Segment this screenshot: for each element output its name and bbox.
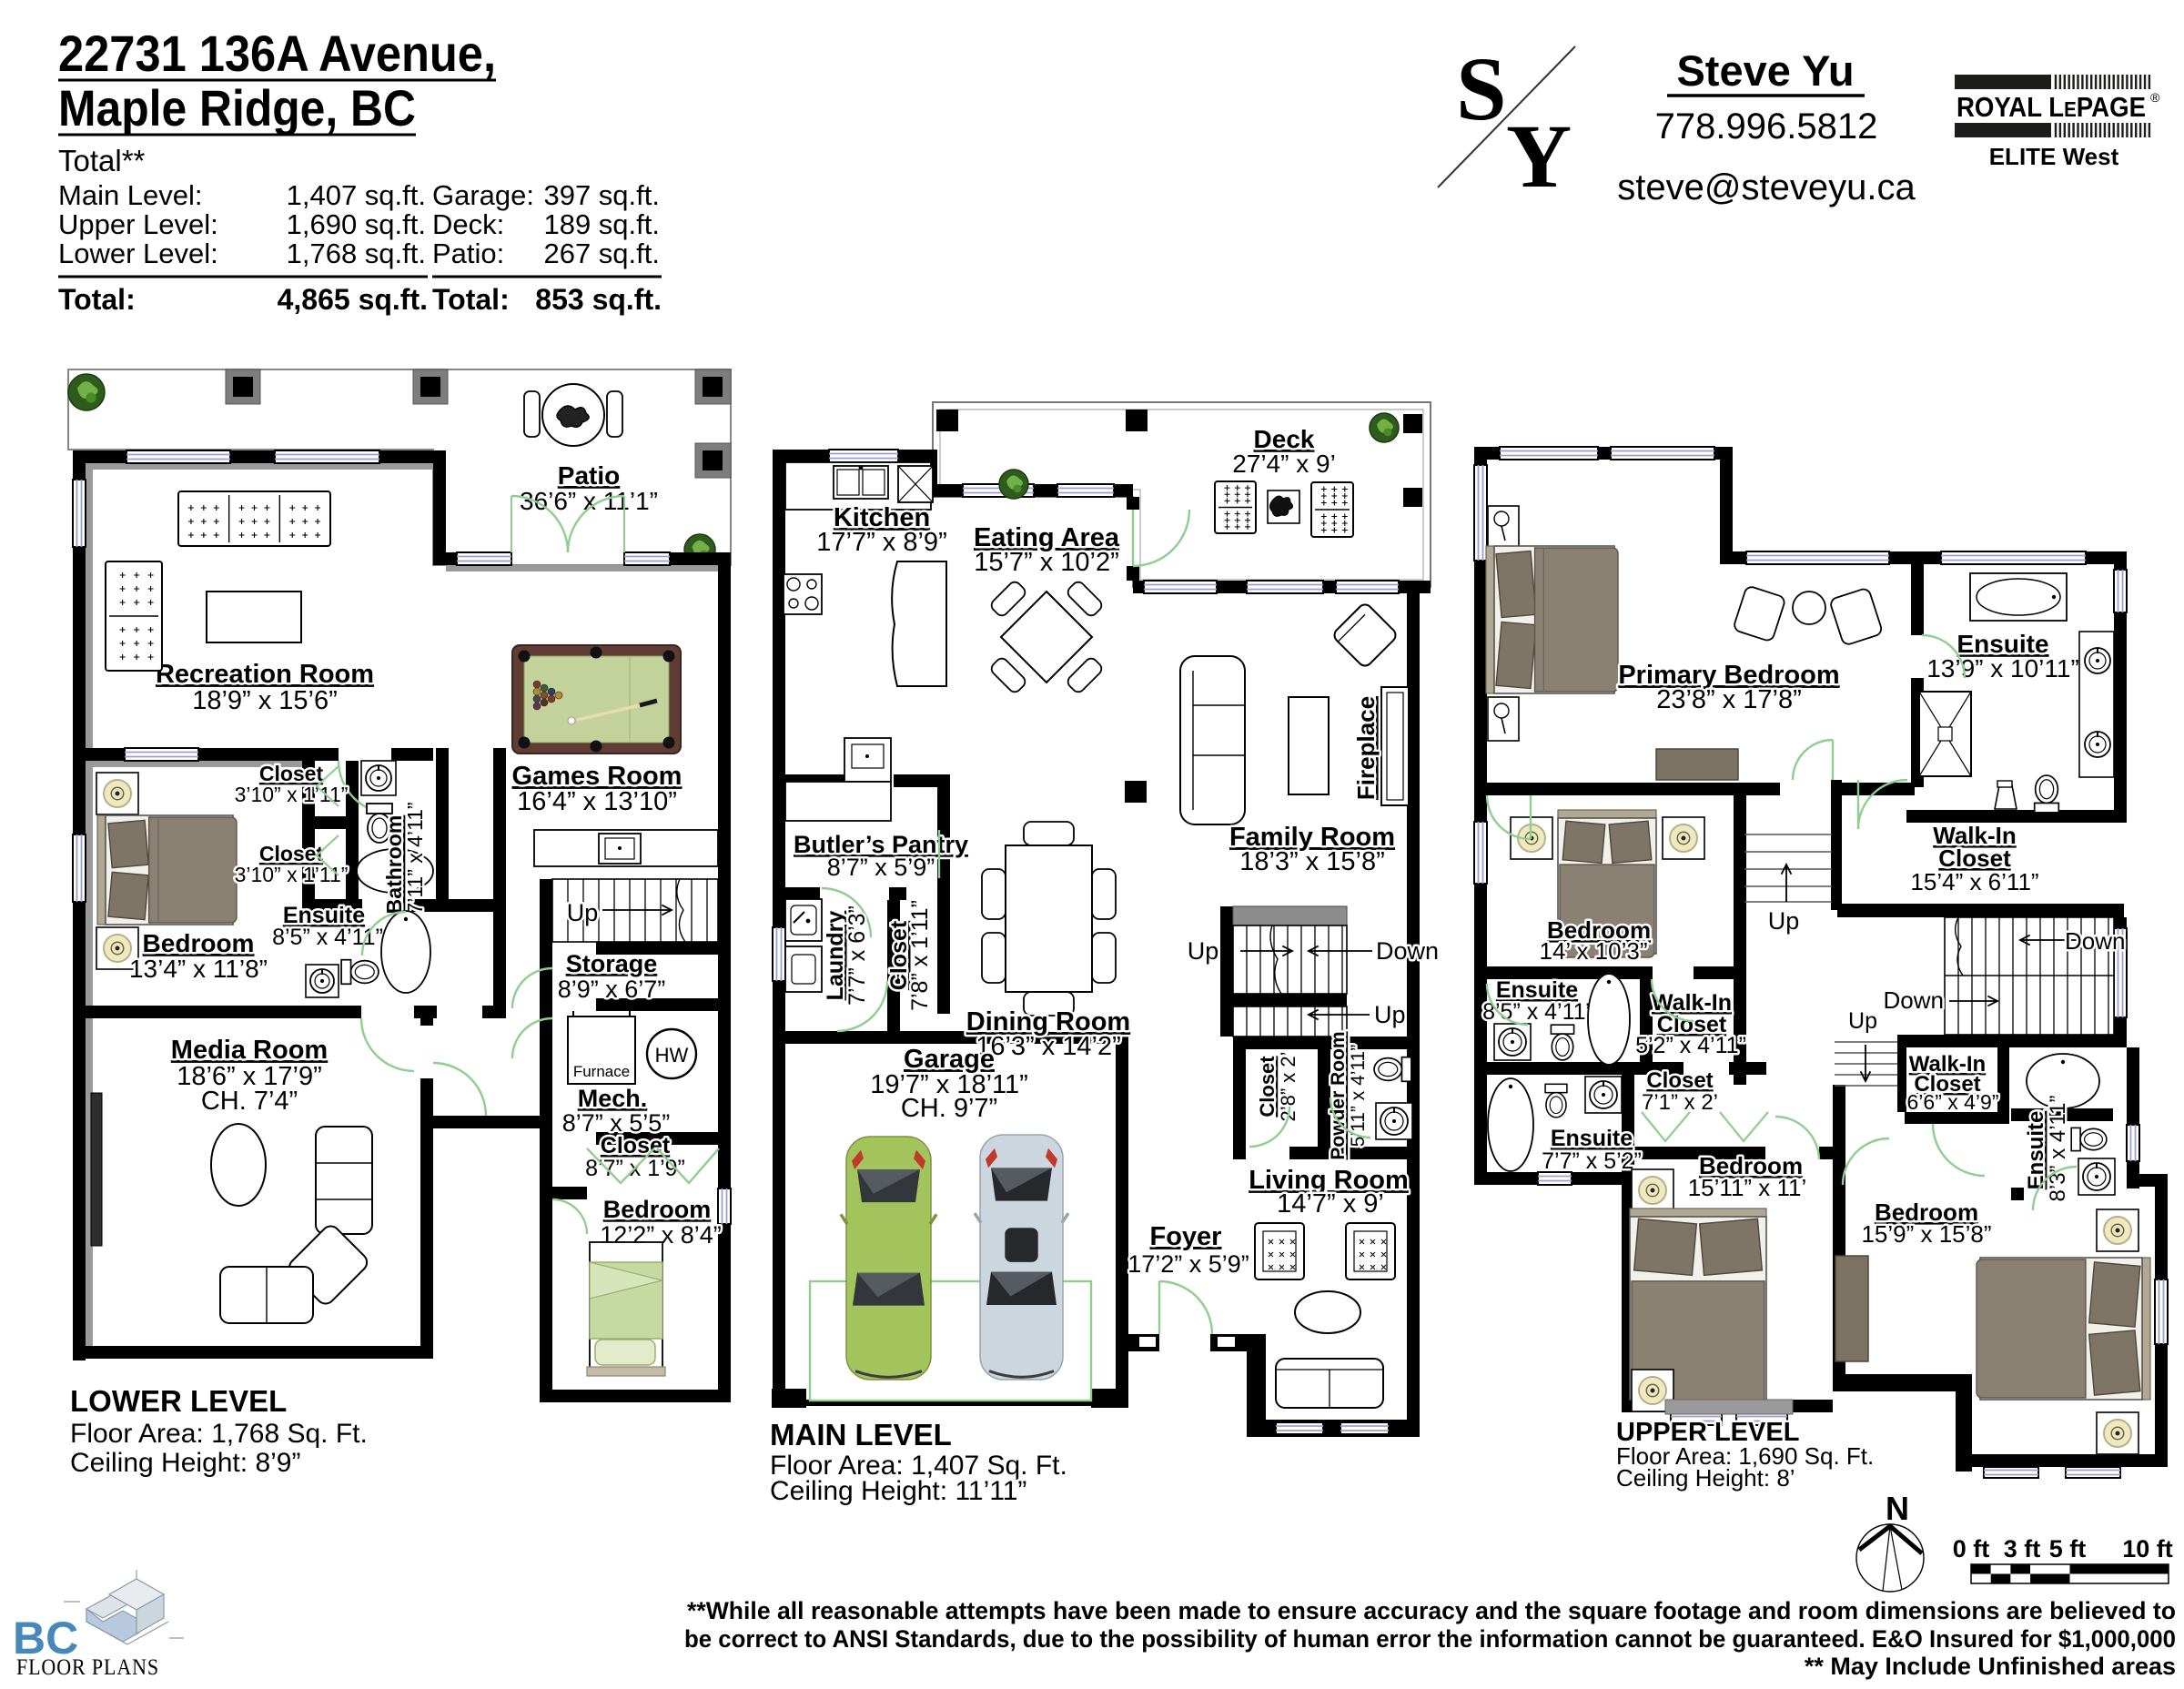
svg-text:7’7” x 6’3”: 7’7” x 6’3” [844,905,870,1006]
svg-text:853 sq.ft.: 853 sq.ft. [535,283,662,316]
svg-text:18’3” x 15’8”: 18’3” x 15’8” [1239,847,1385,876]
svg-text:8’3” x 4’11”: 8’3” x 4’11” [2046,1096,2070,1202]
svg-text:778.996.5812: 778.996.5812 [1655,106,1878,147]
svg-text:** May Include Unfinished area: ** May Include Unfinished areas [1805,1653,2176,1680]
svg-text:Closet: Closet [1256,1056,1279,1118]
svg-text:Ensuite: Ensuite [1551,1126,1633,1151]
svg-text:Down: Down [1884,986,1944,1014]
svg-text:189 sq.ft.: 189 sq.ft. [543,208,660,240]
svg-text:267 sq.ft.: 267 sq.ft. [543,238,660,269]
svg-text:**While all reasonable attempt: **While all reasonable attempts have bee… [687,1597,2176,1624]
svg-text:Upper Level:: Upper Level: [58,208,218,240]
svg-text:steve@steveyu.ca: steve@steveyu.ca [1617,167,1916,207]
svg-text:397 sq.ft.: 397 sq.ft. [543,179,660,211]
svg-text:Furnace: Furnace [573,1063,630,1080]
svg-text:ROYAL LEPAGE: ROYAL LEPAGE [1956,91,2146,123]
svg-text:1,407 sq.ft.: 1,407 sq.ft. [287,179,426,211]
svg-text:5 ft: 5 ft [2049,1535,2087,1563]
svg-text:15’7” x 10’2”: 15’7” x 10’2” [974,548,1119,577]
svg-text:15’11” x 11’: 15’11” x 11’ [1688,1174,1807,1201]
svg-text:8’9” x 6’7”: 8’9” x 6’7” [558,976,666,1003]
svg-text:17’2” x 5’9”: 17’2” x 5’9” [1127,1250,1249,1278]
svg-text:®: ® [2150,90,2160,105]
svg-text:Fireplace: Fireplace [1352,696,1380,800]
svg-text:Down: Down [1376,937,1439,965]
svg-text:Foyer: Foyer [1150,1222,1222,1251]
svg-text:14’ x 10’3”: 14’ x 10’3” [1540,937,1648,965]
svg-text:Total:: Total: [432,283,510,316]
svg-text:Closet: Closet [601,1133,671,1158]
svg-text:7’1” x 2’: 7’1” x 2’ [1642,1090,1718,1115]
svg-text:7’7” x 5’2”: 7’7” x 5’2” [1542,1148,1642,1174]
svg-text:Steve Yu: Steve Yu [1676,46,1854,95]
svg-text:4,865 sq.ft.: 4,865 sq.ft. [278,283,428,316]
svg-text:Garage:: Garage: [432,179,534,211]
svg-text:3’10” x 1’11”: 3’10” x 1’11” [235,783,349,806]
svg-text:23’8” x 17’8”: 23’8” x 17’8” [1656,685,1802,714]
svg-text:Patio: Patio [558,461,620,490]
svg-text:Deck:: Deck: [432,208,504,240]
svg-text:Storage: Storage [566,950,658,977]
svg-text:14’7” x 9’: 14’7” x 9’ [1277,1189,1384,1219]
svg-text:Mech.: Mech. [578,1085,648,1112]
svg-text:ELITE West: ELITE West [1989,143,2119,170]
svg-text:Up: Up [1188,937,1219,965]
svg-text:CH. 7’4”: CH. 7’4” [201,1087,298,1116]
svg-text:16’4” x 13’10”: 16’4” x 13’10” [517,787,677,816]
svg-text:13’9” x 10’11”: 13’9” x 10’11” [1926,654,2079,683]
svg-text:18’9” x 15’6”: 18’9” x 15’6” [192,686,338,715]
svg-text:Up: Up [567,899,599,926]
svg-text:17’7” x 8’9”: 17’7” x 8’9” [816,528,946,557]
svg-text:1,768 sq.ft.: 1,768 sq.ft. [287,238,426,269]
svg-text:3 ft: 3 ft [2004,1535,2041,1563]
svg-text:7’8” x 1’11”: 7’8” x 1’11” [907,900,933,1011]
svg-text:36’6” x 11’1”: 36’6” x 11’1” [520,487,658,515]
svg-text:16’3” x 14’2”: 16’3” x 14’2” [976,1032,1121,1061]
svg-text:15’9” x 15’8”: 15’9” x 15’8” [1861,1220,1991,1248]
svg-text:Maple Ridge, BC: Maple Ridge, BC [58,79,416,137]
svg-text:Main Level:: Main Level: [58,179,203,211]
svg-text:15’4” x 6’11”: 15’4” x 6’11” [1910,868,2038,895]
svg-text:Powder Room: Powder Room [1328,1031,1349,1159]
svg-text:Ceiling Height: 11’11”: Ceiling Height: 11’11” [770,1476,1026,1506]
svg-text:Down: Down [2065,927,2125,955]
svg-text:0 ft: 0 ft [1953,1535,1990,1563]
svg-text:5’2” x 4’11”: 5’2” x 4’11” [1635,1033,1746,1058]
svg-text:CH. 9’7”: CH. 9’7” [901,1094,997,1123]
svg-text:3’10” x 1’11”: 3’10” x 1’11” [235,863,349,886]
svg-text:Patio:: Patio: [432,238,504,269]
svg-text:MAIN LEVEL: MAIN LEVEL [770,1418,952,1451]
svg-text:Up: Up [1768,907,1800,935]
svg-text:Total:: Total: [58,283,136,316]
svg-text:Lower Level:: Lower Level: [58,238,218,269]
svg-text:LOWER LEVEL: LOWER LEVEL [70,1384,287,1418]
svg-text:8’7” x 5’9”: 8’7” x 5’9” [827,854,935,881]
svg-text:Closet: Closet [1646,1068,1713,1093]
svg-text:2’8” x 2’: 2’8” x 2’ [1277,1051,1299,1121]
svg-text:22731 136A Avenue,: 22731 136A Avenue, [58,25,496,82]
svg-text:N: N [1886,1490,1909,1527]
svg-text:Bedroom: Bedroom [603,1196,712,1223]
svg-text:13’4” x 11’8”: 13’4” x 11’8” [129,955,268,983]
svg-text:Ensuite: Ensuite [2024,1111,2048,1190]
svg-text:1,690 sq.ft.: 1,690 sq.ft. [287,208,426,240]
svg-text:Up: Up [1848,1008,1877,1034]
svg-text:Ceiling Height: 8’9”: Ceiling Height: 8’9” [70,1448,300,1478]
svg-text:HW: HW [655,1044,689,1067]
svg-text:FLOOR PLANS: FLOOR PLANS [16,1655,159,1680]
svg-text:Ceiling Height: 8’: Ceiling Height: 8’ [1616,1464,1795,1492]
svg-text:6’6” x 4’9”: 6’6” x 4’9” [1907,1090,1999,1114]
svg-text:Floor Area: 1,768 Sq. Ft.: Floor Area: 1,768 Sq. Ft. [70,1419,368,1449]
svg-text:Media Room: Media Room [171,1036,328,1065]
svg-text:10 ft: 10 ft [2122,1535,2173,1563]
svg-text:be correct to ANSI Standards,: be correct to ANSI Standards, due to the… [684,1625,2176,1653]
svg-text:Recreation Room: Recreation Room [156,660,374,689]
svg-text:Up: Up [1374,1001,1406,1028]
svg-text:7’11” x 4’11”: 7’11” x 4’11” [403,802,427,914]
svg-text:Bedroom: Bedroom [143,929,255,957]
svg-text:27’4” x 9’: 27’4” x 9’ [1232,450,1336,478]
svg-text:Total**: Total** [58,144,146,177]
svg-text:Y: Y [1506,106,1572,207]
